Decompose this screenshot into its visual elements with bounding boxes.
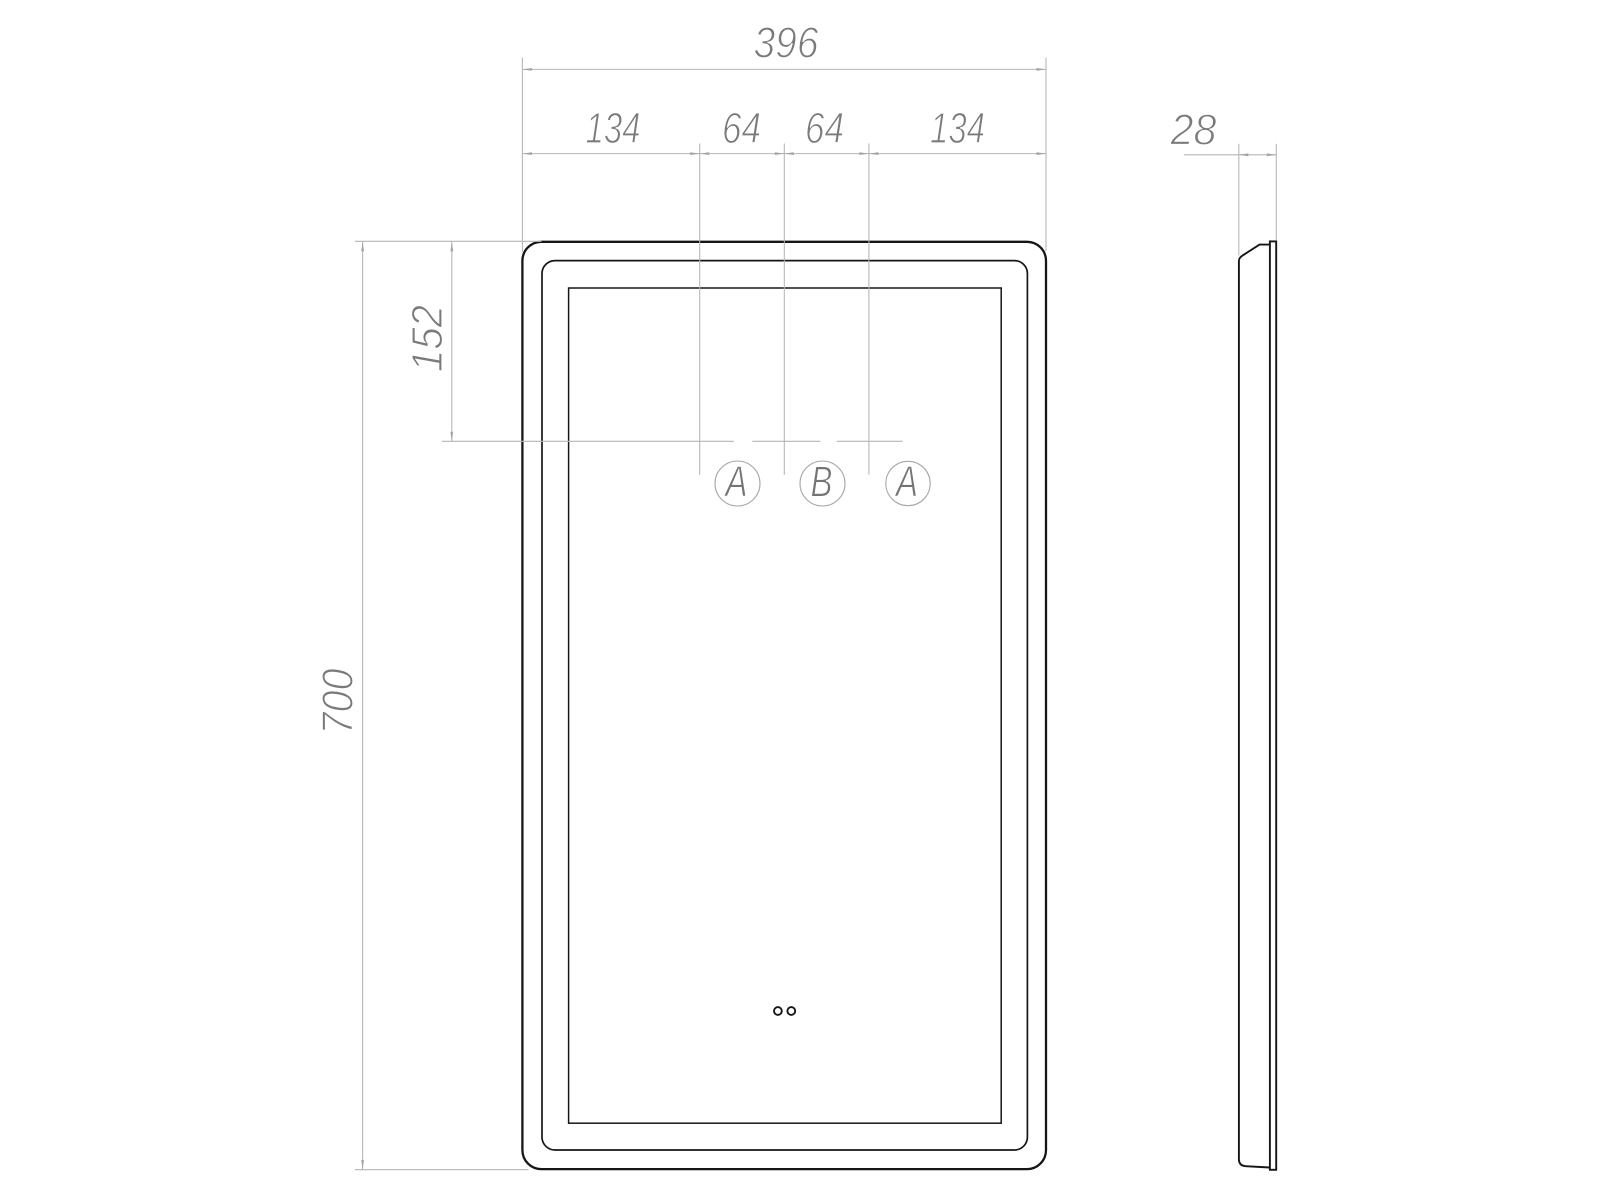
svg-text:134: 134 bbox=[586, 104, 641, 153]
svg-text:64: 64 bbox=[722, 104, 761, 153]
svg-text:A: A bbox=[894, 458, 918, 507]
svg-text:134: 134 bbox=[930, 104, 985, 153]
svg-text:64: 64 bbox=[805, 104, 844, 153]
svg-text:152: 152 bbox=[403, 305, 452, 372]
svg-text:B: B bbox=[810, 458, 832, 507]
svg-text:700: 700 bbox=[314, 668, 363, 734]
svg-text:396: 396 bbox=[754, 19, 819, 68]
svg-text:28: 28 bbox=[1170, 106, 1217, 155]
svg-text:A: A bbox=[724, 458, 748, 507]
